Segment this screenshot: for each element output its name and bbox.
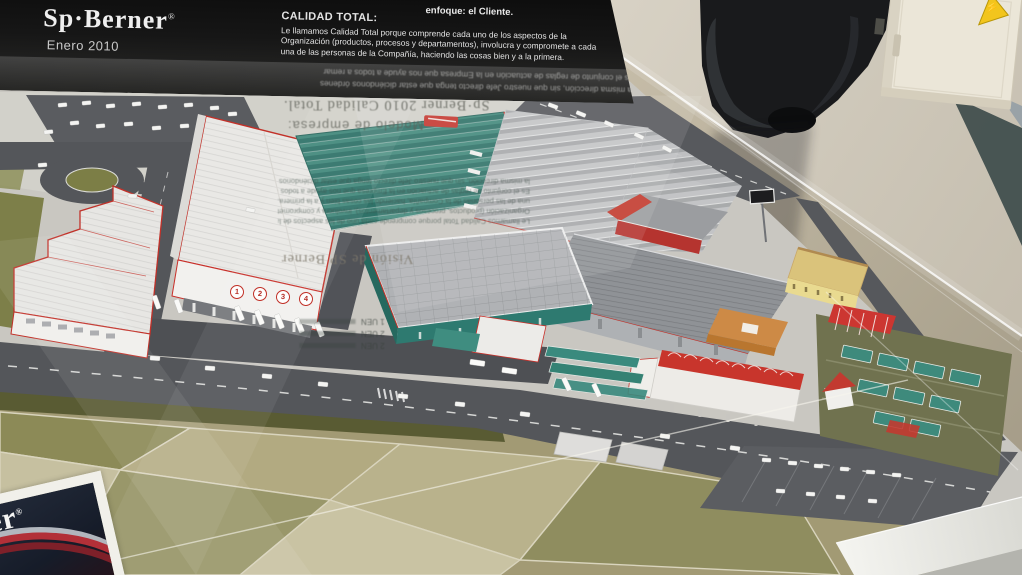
pole-sign: [750, 189, 775, 204]
reflection-paragraph-line: la misma dirección, sin que nuestro Jefe…: [278, 176, 530, 186]
brand-text: Sp·Berner: [43, 3, 168, 35]
reflection-paragraph-line: Es el conjunto de reglas de actuación en…: [278, 186, 530, 196]
header-sign: enfoque: el Cliente. Sp·Berner® Enero 20…: [0, 0, 636, 104]
reflection-subtitle: Modelo de empresa:: [287, 118, 424, 133]
card-registered-mark: ®: [14, 506, 24, 517]
blur-bar: [300, 319, 356, 324]
reflection-uen-line: 1 UEN: [361, 317, 385, 326]
reflection-uen-list: 2 UEN 2 UEN 1 UEN: [300, 314, 385, 350]
reflection-paragraph-line: una de las personas de la Compañía, haci…: [278, 196, 530, 206]
sign-date: Enero 2010: [47, 37, 120, 54]
photo-scene: Sp·Berner 2010 Calidad Total. Modelo de …: [0, 0, 1022, 575]
reflection-vision: Visión de SP Berner: [281, 250, 413, 266]
reflection-paragraph: Le llamamos Calidad Total porque compren…: [278, 176, 530, 226]
reflection-paragraph-line: Organización (productos, procesos y depa…: [278, 206, 530, 216]
blur-bar: [300, 331, 356, 336]
registered-mark: ®: [168, 11, 176, 21]
blur-bar: [300, 343, 356, 348]
quality-text-block: CALIDAD TOTAL: Le llamamos Calidad Total…: [281, 10, 627, 63]
reflection-uen-line: 2 UEN: [361, 341, 385, 350]
brand-logo: Sp·Berner®: [43, 3, 176, 36]
reflection-uen-line: 2 UEN: [361, 329, 385, 338]
roundabout: [66, 168, 118, 192]
high-voltage-icon: ⚡: [984, 0, 1000, 15]
card-swoosh-dark-red: [0, 538, 132, 575]
reflection-paragraph-line: Le llamamos Calidad Total porque compren…: [278, 216, 530, 226]
